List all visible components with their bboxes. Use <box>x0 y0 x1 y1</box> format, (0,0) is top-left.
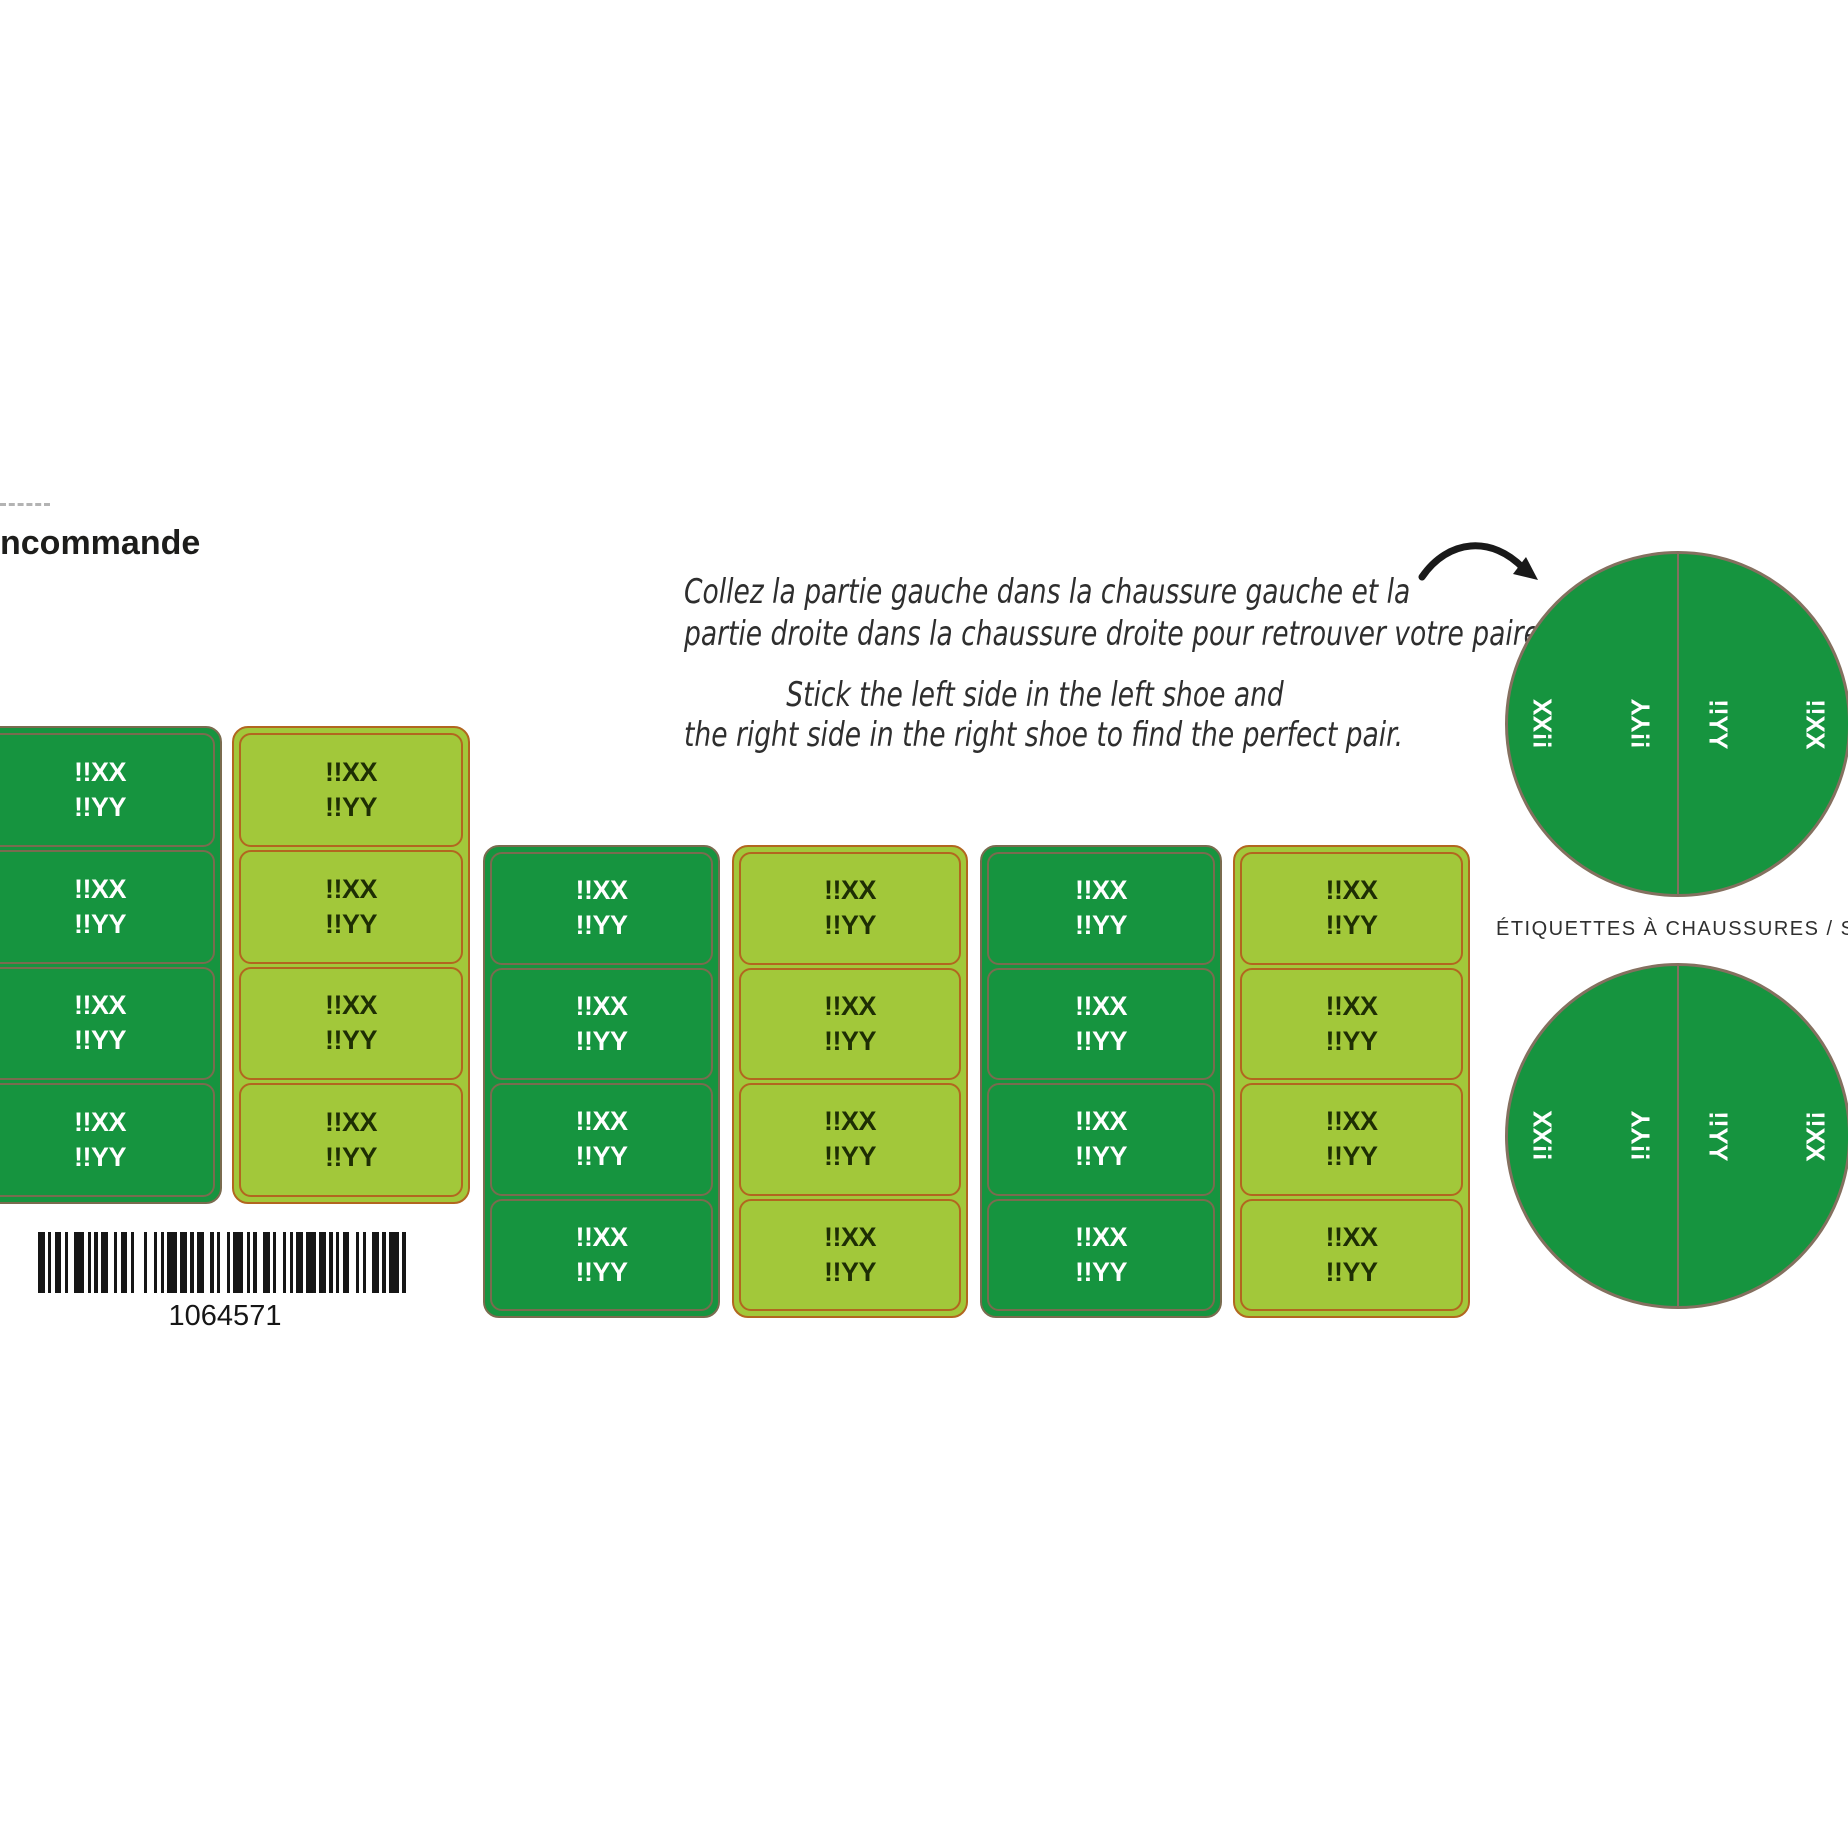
barcode-bar <box>55 1232 62 1293</box>
sticker-line-2: !!YY <box>74 907 126 942</box>
sticker-label: !!XX!!YY <box>239 967 463 1081</box>
barcode-gap <box>134 1232 144 1293</box>
sticker-label: !!XX!!YY <box>0 850 215 964</box>
sticker-line-2: !!YY <box>576 1139 628 1174</box>
shoe-label-circle-1: !!XX!!YY!!YY!!XX <box>1505 551 1848 897</box>
barcode-bar <box>319 1232 326 1293</box>
barcode-gap <box>147 1232 154 1293</box>
sticker-label: !!XX!!YY <box>987 1083 1215 1196</box>
label-column-4: !!XX!!YY!!XX!!YY!!XX!!YY!!XX!!YY <box>732 845 968 1318</box>
barcode-bar <box>233 1232 243 1293</box>
sticker-line-2: !!YY <box>1326 1255 1378 1290</box>
shoe-label-circle-2: !!XX!!YY!!YY!!XX <box>1505 963 1848 1309</box>
sticker-line-1: !!XX <box>576 989 628 1024</box>
sticker-label: !!XX!!YY <box>739 968 961 1081</box>
sticker-line-1: !!XX <box>325 988 377 1023</box>
sticker-label: !!XX!!YY <box>0 1083 215 1197</box>
label-column-1: !!XX!!YY!!XX!!YY!!XX!!YY!!XX!!YY <box>0 726 222 1204</box>
sticker-line-2: !!YY <box>824 1024 876 1059</box>
barcode-bar <box>38 1232 45 1293</box>
sticker-line-1: !!XX <box>1326 1104 1378 1139</box>
barcode-bar <box>389 1232 399 1293</box>
sticker-line-1: !!XX <box>824 1220 876 1255</box>
sticker-label: !!XX!!YY <box>739 1083 961 1196</box>
sticker-label: !!XX!!YY <box>0 733 215 847</box>
sticker-line-2: !!YY <box>1075 908 1127 943</box>
order-form-title: ncommande <box>0 524 200 563</box>
sticker-line-2: !!YY <box>1326 908 1378 943</box>
barcode-bar <box>101 1232 108 1293</box>
circle-label-text: !!XX <box>1800 1111 1831 1161</box>
barcode-gap <box>204 1232 211 1293</box>
sticker-label: !!XX!!YY <box>0 967 215 1081</box>
barcode-bar <box>167 1232 177 1293</box>
circle-label-text: !!YY <box>1703 699 1734 749</box>
instruction-line-fr-1: Collez la partie gauche dans la chaussur… <box>684 570 1386 614</box>
label-column-6: !!XX!!YY!!XX!!YY!!XX!!YY!!XX!!YY <box>1233 845 1470 1318</box>
instruction-line-en-2: the right side in the right shoe to find… <box>684 713 1386 757</box>
sticker-line-2: !!YY <box>74 1023 126 1058</box>
barcode-bar <box>306 1232 316 1293</box>
sticker-line-2: !!YY <box>576 1024 628 1059</box>
barcode-bar <box>180 1232 187 1293</box>
sticker-label: !!XX!!YY <box>490 968 713 1081</box>
sticker-line-1: !!XX <box>824 1104 876 1139</box>
sticker-line-2: !!YY <box>576 1255 628 1290</box>
sticker-line-1: !!XX <box>576 1220 628 1255</box>
curved-arrow-icon <box>1414 531 1546 603</box>
sticker-line-2: !!YY <box>325 1140 377 1175</box>
sticker-line-2: !!YY <box>1075 1139 1127 1174</box>
sticker-line-1: !!XX <box>325 1105 377 1140</box>
sticker-line-1: !!XX <box>74 988 126 1023</box>
sticker-label: !!XX!!YY <box>739 852 961 965</box>
shoe-labels-caption: ÉTIQUETTES À CHAUSSURES / SHOE LABELS <box>1496 918 1848 941</box>
sticker-line-2: !!YY <box>74 1140 126 1175</box>
barcode-gap <box>108 1232 115 1293</box>
barcode-bar <box>263 1232 270 1293</box>
barcode-bar <box>74 1232 84 1293</box>
sticker-label: !!XX!!YY <box>490 1083 713 1196</box>
circle-divider-line <box>1677 554 1679 894</box>
sticker-line-1: !!XX <box>325 755 377 790</box>
barcode-gap <box>68 1232 75 1293</box>
barcode-gap <box>406 1232 413 1293</box>
sticker-line-2: !!YY <box>325 907 377 942</box>
sticker-label: !!XX!!YY <box>1240 968 1463 1081</box>
sticker-line-1: !!XX <box>1326 989 1378 1024</box>
barcode-gap <box>257 1232 264 1293</box>
sticker-line-1: !!XX <box>824 873 876 908</box>
sticker-line-2: !!YY <box>824 1139 876 1174</box>
sticker-label: !!XX!!YY <box>1240 852 1463 965</box>
barcode-bar <box>372 1232 379 1293</box>
sticker-label: !!XX!!YY <box>490 852 713 965</box>
sticker-line-2: !!YY <box>74 790 126 825</box>
barcode-number: 1064571 <box>38 1300 412 1333</box>
sticker-line-1: !!XX <box>1326 873 1378 908</box>
sticker-label: !!XX!!YY <box>239 850 463 964</box>
sticker-label: !!XX!!YY <box>987 968 1215 1081</box>
instruction-line-fr-2: partie droite dans la chaussure droite p… <box>684 612 1386 656</box>
label-column-3: !!XX!!YY!!XX!!YY!!XX!!YY!!XX!!YY <box>483 845 720 1318</box>
cut-line-dashes <box>0 503 50 506</box>
barcode-bar <box>296 1232 303 1293</box>
sticker-line-1: !!XX <box>824 989 876 1024</box>
circle-label-text: !!YY <box>1626 699 1657 749</box>
barcode <box>38 1232 412 1293</box>
barcode-gap <box>349 1232 356 1293</box>
sticker-label: !!XX!!YY <box>1240 1199 1463 1312</box>
sticker-line-1: !!XX <box>325 872 377 907</box>
sticker-label: !!XX!!YY <box>239 733 463 847</box>
sticker-line-2: !!YY <box>576 908 628 943</box>
sticker-line-1: !!XX <box>74 1105 126 1140</box>
sticker-line-2: !!YY <box>1075 1255 1127 1290</box>
sticker-line-1: !!XX <box>576 1104 628 1139</box>
sticker-line-2: !!YY <box>1075 1024 1127 1059</box>
sticker-line-2: !!YY <box>824 1255 876 1290</box>
barcode-gap <box>366 1232 373 1293</box>
sticker-label: !!XX!!YY <box>987 1199 1215 1312</box>
sticker-line-1: !!XX <box>576 873 628 908</box>
sticker-label: !!XX!!YY <box>1240 1083 1463 1196</box>
instruction-line-en-1: Stick the left side in the left shoe and <box>684 673 1386 717</box>
label-column-5: !!XX!!YY!!XX!!YY!!XX!!YY!!XX!!YY <box>980 845 1222 1318</box>
sticker-line-1: !!XX <box>1075 873 1127 908</box>
sticker-label: !!XX!!YY <box>987 852 1215 965</box>
sticker-label: !!XX!!YY <box>490 1199 713 1312</box>
sticker-line-1: !!XX <box>1326 1220 1378 1255</box>
barcode-gap <box>276 1232 283 1293</box>
sticker-line-1: !!XX <box>1075 1220 1127 1255</box>
barcode-gap <box>220 1232 227 1293</box>
barcode-bar <box>343 1232 350 1293</box>
barcode-bar <box>197 1232 204 1293</box>
sticker-line-1: !!XX <box>1075 1104 1127 1139</box>
sticker-line-2: !!YY <box>325 790 377 825</box>
sticker-line-2: !!YY <box>824 908 876 943</box>
sticker-label: !!XX!!YY <box>739 1199 961 1312</box>
circle-divider-line <box>1677 966 1679 1306</box>
circle-label-text: !!XX <box>1528 699 1559 749</box>
label-column-2: !!XX!!YY!!XX!!YY!!XX!!YY!!XX!!YY <box>232 726 470 1204</box>
circle-label-text: !!XX <box>1800 699 1831 749</box>
sticker-line-1: !!XX <box>1075 989 1127 1024</box>
circle-label-text: !!YY <box>1703 1111 1734 1161</box>
sticker-line-1: !!XX <box>74 755 126 790</box>
circle-label-text: !!XX <box>1528 1111 1559 1161</box>
circle-label-text: !!YY <box>1626 1111 1657 1161</box>
sticker-line-2: !!YY <box>1326 1139 1378 1174</box>
sticker-line-2: !!YY <box>325 1023 377 1058</box>
sticker-label: !!XX!!YY <box>239 1083 463 1197</box>
label-sheet-page: ncommande Collez la partie gauche dans l… <box>0 0 1848 1848</box>
sticker-line-1: !!XX <box>74 872 126 907</box>
sticker-line-2: !!YY <box>1326 1024 1378 1059</box>
barcode-bar <box>121 1232 128 1293</box>
